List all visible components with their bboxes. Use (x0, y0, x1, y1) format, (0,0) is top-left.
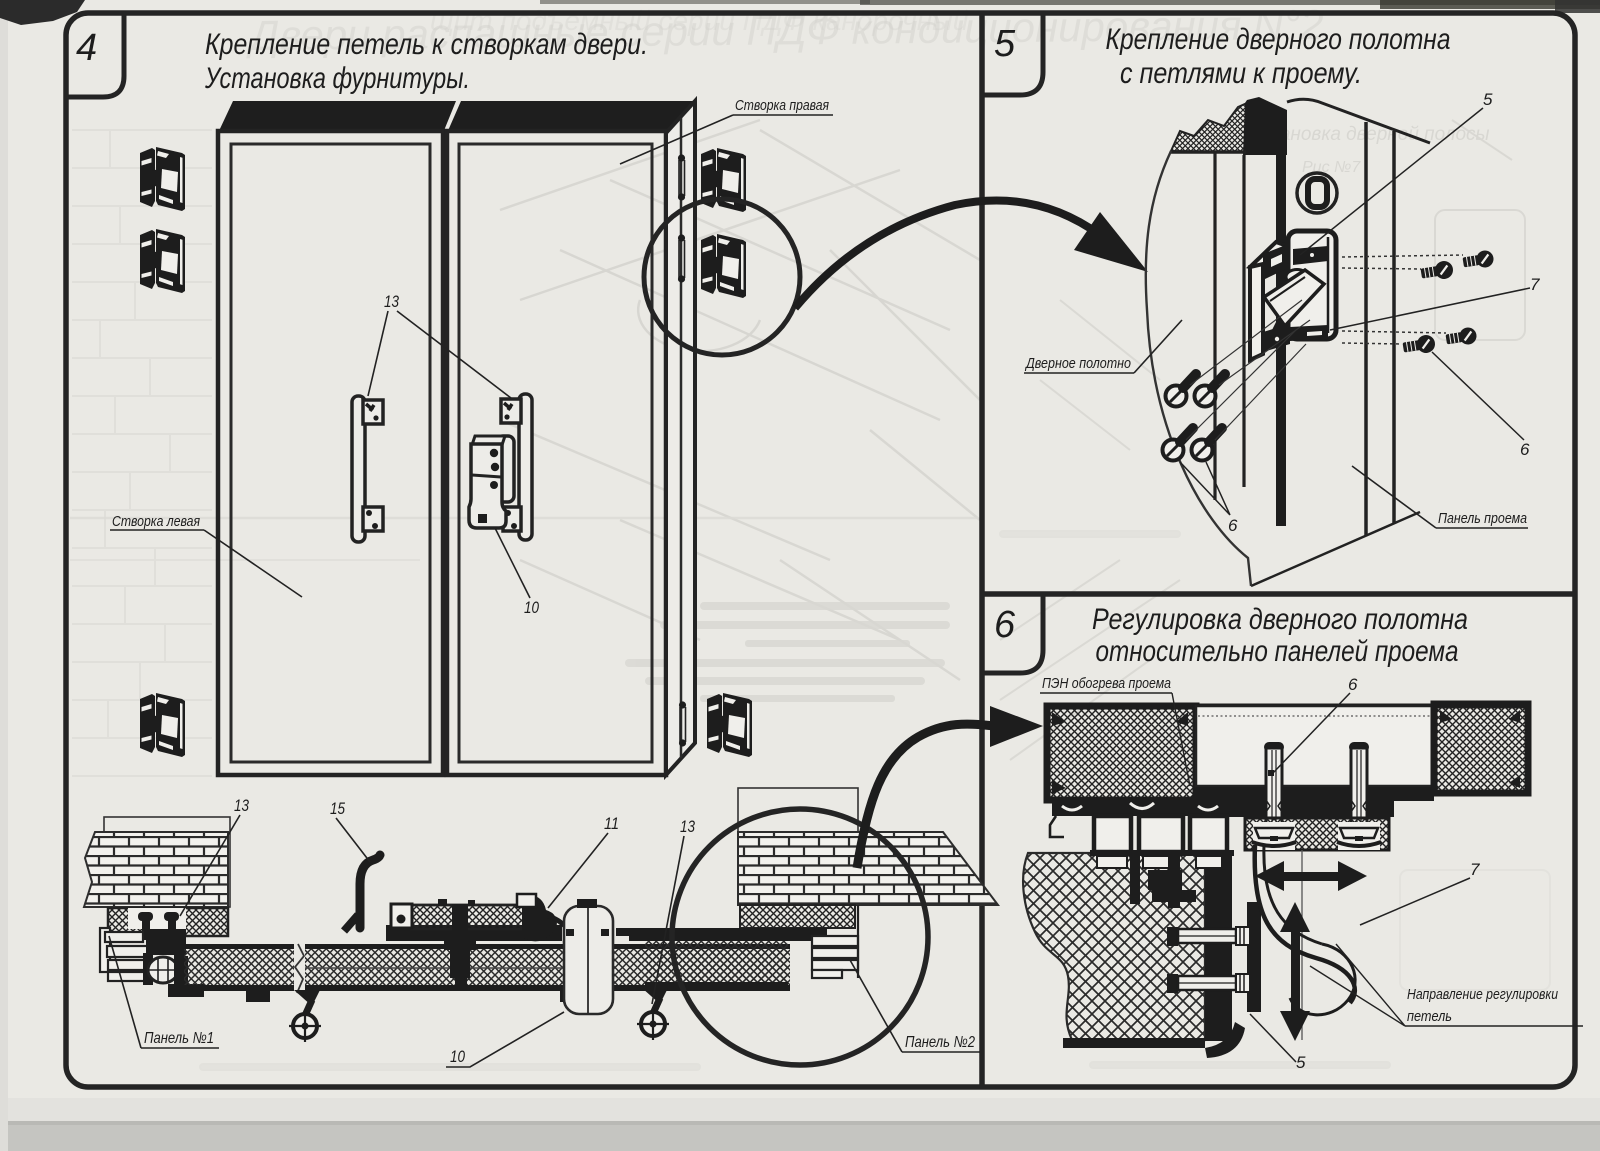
svg-text:5: 5 (994, 23, 1016, 65)
svg-text:Панель проема: Панель проема (1438, 510, 1527, 527)
svg-text:Створка левая: Створка левая (112, 513, 200, 530)
svg-text:13: 13 (680, 817, 695, 836)
svg-text:Панель №1: Панель №1 (144, 1030, 214, 1047)
svg-text:6: 6 (1228, 516, 1238, 535)
svg-text:с петлями к проему.: с петлями к проему. (1120, 57, 1362, 90)
svg-text:Направление регулировки: Направление регулировки (1407, 986, 1559, 1003)
svg-text:11: 11 (604, 814, 619, 833)
svg-text:петель: петель (1407, 1008, 1452, 1025)
svg-text:Установка фурнитуры.: Установка фурнитуры. (204, 62, 470, 95)
svg-text:ПЭН обогрева проема: ПЭН обогрева проема (1042, 675, 1171, 692)
svg-text:5: 5 (1483, 90, 1493, 109)
svg-text:Дверное полотно: Дверное полотно (1024, 355, 1131, 372)
svg-text:относительно панелей проема: относительно панелей проема (1096, 635, 1459, 668)
svg-text:6: 6 (1520, 440, 1530, 459)
svg-text:13: 13 (234, 796, 249, 815)
svg-text:Крепление дверного полотна: Крепление дверного полотна (1106, 23, 1451, 56)
svg-text:4: 4 (76, 27, 97, 69)
svg-text:6: 6 (1348, 675, 1358, 694)
svg-text:Крепление петель к створкам дв: Крепление петель к створкам двери. (205, 28, 648, 61)
svg-text:15: 15 (330, 799, 345, 818)
svg-text:5: 5 (1296, 1053, 1306, 1072)
svg-text:Панель №2: Панель №2 (905, 1034, 975, 1051)
svg-text:7: 7 (1530, 275, 1540, 294)
svg-text:Регулировка дверного полотна: Регулировка дверного полотна (1092, 603, 1468, 636)
svg-text:7: 7 (1470, 860, 1480, 879)
svg-text:10: 10 (524, 598, 539, 617)
svg-text:Створка правая: Створка правая (735, 97, 829, 114)
svg-text:6: 6 (994, 604, 1016, 646)
svg-text:13: 13 (384, 292, 399, 311)
svg-text:10: 10 (450, 1047, 465, 1066)
